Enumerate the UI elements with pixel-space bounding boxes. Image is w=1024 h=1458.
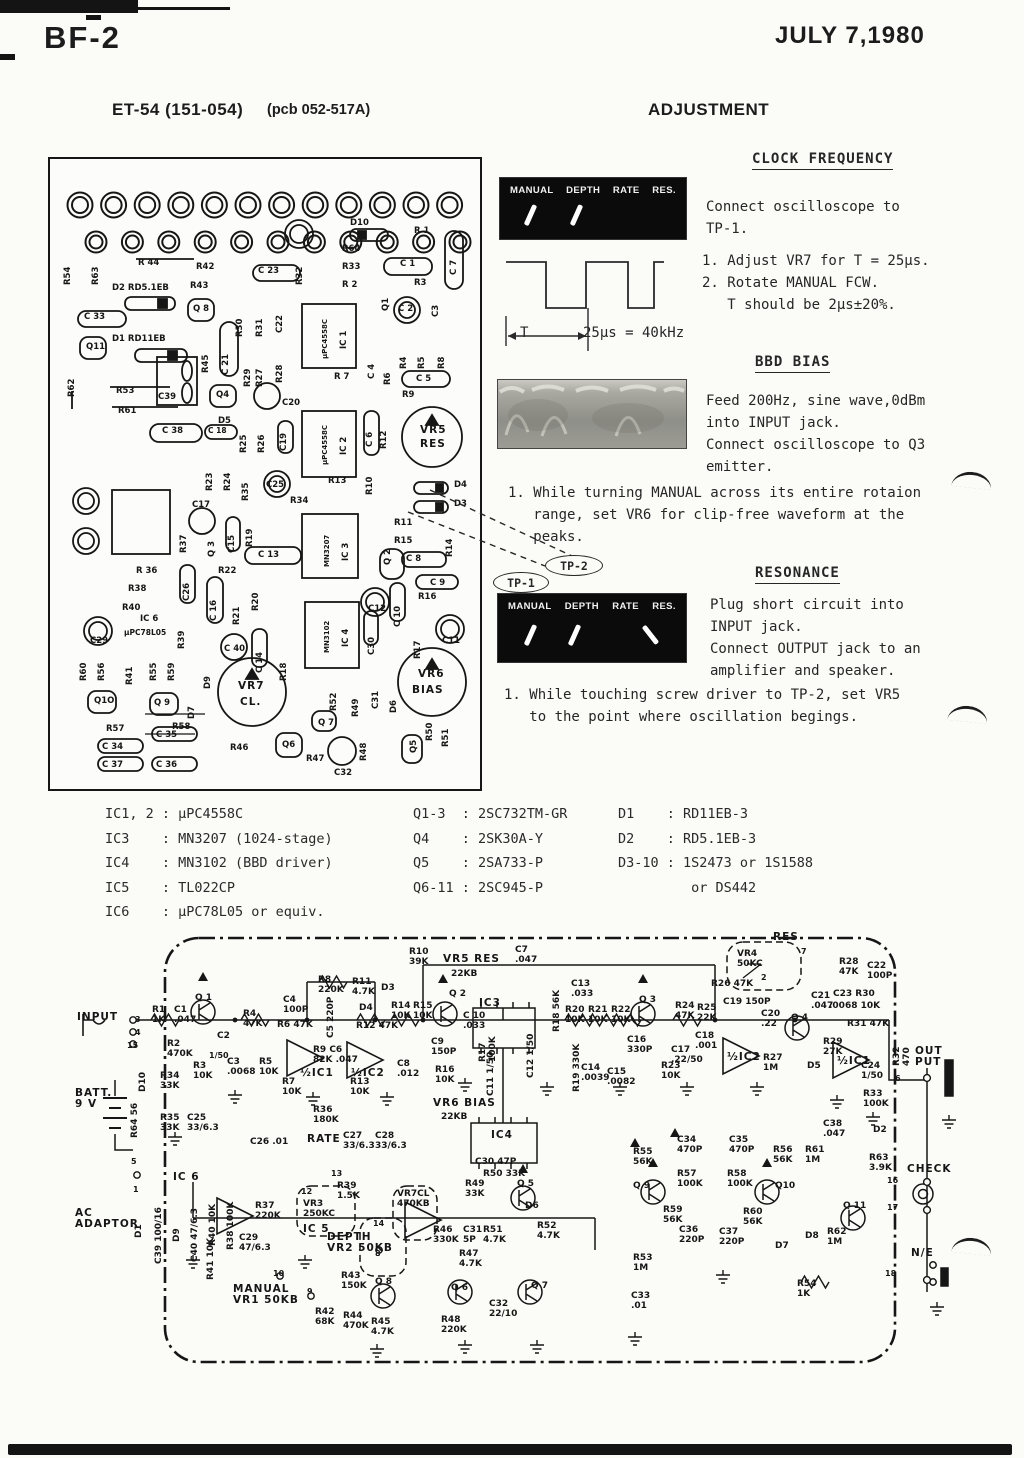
sch-label-c20: C20 .22 — [761, 1010, 780, 1029]
depth-knob-pointer — [570, 204, 583, 226]
text-line: amplifier and speaker. — [710, 660, 921, 682]
sch-label-c28: C28 33/6.3 — [375, 1132, 407, 1151]
sch-label-c9: C9 150P — [431, 1038, 456, 1057]
knob-label-manual: MANUAL — [510, 185, 554, 196]
sch-label-r21: R21 10K — [588, 1006, 608, 1025]
sch-label-r34: R34 33K — [160, 1072, 180, 1091]
sch-label-c7: C7 .047 — [515, 946, 537, 965]
sch-label-c4: C4 100P — [283, 996, 308, 1015]
sch-label-vr6: VR6 BIAS — [433, 1098, 496, 1109]
text-line: 1. Adjust VR7 for T = 25μs. — [702, 250, 930, 272]
sch-label-4: 4 — [135, 1029, 141, 1038]
sch-label-q: Q 11 — [843, 1202, 866, 1212]
text-line: to the point where oscillation begings. — [504, 706, 900, 728]
sch-label-r39: R39 1.5K — [337, 1182, 360, 1201]
sch-label-d10: D10 — [139, 1072, 149, 1092]
text-line: Q6-11 : 2SC945-P — [413, 876, 567, 901]
knob-label-res: RES. — [652, 601, 676, 612]
sch-label-q: Q 3 — [639, 996, 656, 1006]
sch-label-check: CHECK — [907, 1164, 952, 1175]
sch-label-r37: R37 220K — [255, 1202, 281, 1221]
sch-label-r43: R43 150K — [341, 1272, 367, 1291]
text-line: Q5 : 2SA733-P — [413, 851, 567, 876]
sch-label-c11: C11 1/50 — [487, 1052, 497, 1096]
sch-label-c35: C35 470P — [729, 1136, 754, 1155]
sch-label-ic: IC 5 — [303, 1224, 330, 1235]
test-point-tp2: TP-2 — [545, 555, 603, 576]
wave-frequency-label: 25μs = 40kHz — [583, 322, 684, 344]
sch-label-c8: C8 .012 — [397, 1060, 419, 1079]
text-line: or DS442 — [618, 876, 813, 901]
sch-label-r27: R27 1M — [763, 1054, 782, 1073]
sch-label-c23: C23 R30 — [833, 990, 875, 1000]
clock-frequency-steps: 1. Adjust VR7 for T = 25μs.2. Rotate MAN… — [702, 250, 930, 316]
sch-label-r57: R57 100K — [677, 1170, 703, 1189]
sch-label-vr7cl: VR7CL 470KB — [397, 1190, 430, 1209]
sch-label-d2: D2 — [873, 1126, 887, 1136]
sch-label-d8: D8 — [805, 1232, 819, 1242]
sch-label-r49: R49 33K — [465, 1180, 485, 1199]
sch-label-c30: C30 47P — [475, 1158, 516, 1168]
sch-label-2: 2 — [761, 974, 767, 983]
sch-label-r8: R8 220K — [318, 976, 344, 995]
text-line: Connect oscilloscope to — [706, 196, 900, 218]
sch-label-5: 5 — [131, 1158, 137, 1167]
knob-label-rate: RATE — [612, 601, 639, 612]
sch-label-r25: R25 22K — [697, 1004, 717, 1023]
sch-label-r53: R53 1M — [633, 1254, 652, 1273]
sch-label-r59: R59 56K — [663, 1206, 683, 1225]
sch-label-q: Q 5 — [517, 1180, 534, 1190]
text-line: 2. Rotate MANUAL FCW. — [702, 272, 930, 294]
sch-label-c24: C24 1/50 — [861, 1062, 883, 1081]
sch-label-16: 16 — [887, 1177, 898, 1186]
sch-label-res: RES — [773, 932, 799, 943]
sch-label-r42: R42 68K — [315, 1308, 335, 1327]
sch-label-vr5: VR5 RES — [443, 954, 500, 965]
sch-label-q: Q 7 — [531, 1282, 548, 1292]
sch-label-13: 13 — [331, 1170, 342, 1179]
sch-label-r55: R55 56K — [633, 1148, 653, 1167]
sch-label-r1: R1 1K — [152, 1006, 165, 1025]
sch-label-½ic2: ½IC2 — [727, 1052, 761, 1063]
res-knob-pointer — [642, 625, 659, 645]
sch-label-r60: R60 56K — [743, 1208, 763, 1227]
sch-label-r24: R24 47K — [675, 1002, 695, 1021]
sch-label-r44: R44 470K — [343, 1312, 369, 1331]
text-line: Feed 200Hz, sine wave,0dBm — [706, 390, 925, 412]
sch-label-d1: D1 — [135, 1224, 145, 1238]
sch-label-c33: C33 .01 — [631, 1292, 650, 1311]
sch-label-c40: C40 47/6.3 — [191, 1208, 201, 1262]
knob-panel-clock: MANUALDEPTHRATERES. — [500, 178, 686, 239]
sch-label-depth: DEPTH VR2 50KB — [327, 1232, 393, 1255]
sch-label-d9: D9 — [173, 1228, 183, 1242]
sch-label-q: Q 1 — [195, 994, 212, 1004]
sch-label-12: 12 — [301, 1188, 312, 1197]
sch-label-q: Q 8 — [375, 1278, 392, 1288]
sch-label-r31: R31 47K — [847, 1020, 889, 1030]
text-line: IC1, 2 : μPC4558C — [105, 802, 333, 827]
knob-label-res: RES. — [652, 185, 676, 196]
sch-label-c29: C29 47/6.3 — [239, 1234, 271, 1253]
sch-label-r7: R7 10K — [282, 1078, 302, 1097]
sch-label-c26: C26 .01 — [250, 1138, 288, 1148]
sch-label-n/e: N/E — [911, 1248, 934, 1259]
sch-label-manual: MANUAL VR1 50KB — [233, 1284, 299, 1307]
resonance-heading: RESONANCE — [755, 565, 840, 584]
clock-frequency-intro: Connect oscilloscope toTP-1. — [706, 196, 900, 240]
text-line: D1 : RD11EB-3 — [618, 802, 813, 827]
sch-label-c: C 10 .033 — [463, 1012, 485, 1031]
parts-list: IC1, 2 : μPC4558CIC3 : MN3207 (1024-stag… — [105, 802, 965, 930]
text-line: Connect oscilloscope to Q3 — [706, 434, 925, 456]
sch-label-q: Q 2 — [449, 990, 466, 1000]
sch-label-3: 3 — [135, 1016, 141, 1025]
resonance-intro: Plug short circuit intoINPUT jack.Connec… — [710, 594, 921, 682]
sch-label-c14: C14 .0039 — [581, 1064, 609, 1083]
resonance-steps: 1. While touching screw driver to TP-2, … — [504, 684, 900, 728]
sch-label-batt.: BATT. 9 V — [75, 1088, 112, 1111]
sch-label-r41: R41 10K — [207, 1238, 217, 1280]
sch-label-r36: R36 180K — [313, 1106, 339, 1125]
scan-artifact-bottom-bar — [8, 1444, 1012, 1455]
sch-label-c19: C19 150P — [723, 998, 771, 1008]
depth-knob-pointer — [568, 624, 581, 646]
sch-label-c36: C36 220P — [679, 1226, 704, 1245]
text-line: INPUT jack. — [710, 616, 921, 638]
service-manual-page: BF-2 JULY 7,1980 ET-54 (151-054) (pcb 05… — [0, 0, 1024, 1458]
sch-label-9: 9 — [307, 1288, 313, 1297]
sch-label-.0068: .0068 10K — [829, 1002, 880, 1012]
sch-label-c5: C5 220P — [327, 997, 337, 1038]
text-line: 1. While touching screw driver to TP-2, … — [504, 684, 900, 706]
text-line: IC4 : MN3102 (BBD driver) — [105, 851, 333, 876]
sch-label-r61: R61 1M — [805, 1146, 824, 1165]
sch-label-c22: C22 100P — [867, 962, 892, 981]
sch-label-r22: R22 10K — [611, 1006, 631, 1025]
sch-label-r38: R38 100K — [227, 1202, 237, 1250]
sch-label-c1: C1 .047 — [174, 1006, 196, 1025]
sch-label-q: Q 9 — [633, 1182, 650, 1192]
sch-label-d6: D6 — [525, 1202, 539, 1212]
sch-label-c37: C37 220P — [719, 1228, 744, 1247]
schematic-diagram: INPUT3415R1 1KC1 .047Q 1R2 470KR3 10KR34… — [75, 920, 1015, 1405]
bbd-bias-intro: Feed 200Hz, sine wave,0dBminto INPUT jac… — [706, 390, 925, 478]
sch-label-1/50: 1/50 — [209, 1052, 229, 1061]
sch-label-15: 15 — [127, 1042, 138, 1051]
sch-label-r12: R12 47K — [356, 1022, 398, 1032]
sch-label-18: 18 — [885, 1270, 896, 1279]
sch-label-c12: C12 1/50 — [527, 1034, 537, 1078]
sch-label-ic4: IC4 — [491, 1130, 513, 1141]
sch-label-r64: R64 56 — [131, 1103, 141, 1138]
sch-label-q: Q 4 — [791, 1014, 808, 1024]
sch-label-r20: R20 10K — [565, 1006, 585, 1025]
sch-label-r63: R63 3.9K — [869, 1154, 892, 1173]
text-line: TP-1. — [706, 218, 900, 240]
sch-label-r18: R18 56K — [553, 990, 563, 1032]
sch-label-22kb: 22KB — [451, 970, 477, 980]
knob-label-depth: DEPTH — [565, 601, 599, 612]
sch-label-ic: IC 6 — [173, 1172, 200, 1183]
sch-label-d5: D5 — [807, 1062, 821, 1072]
sch-label-c32: C32 22/10 — [489, 1300, 517, 1319]
sch-label-c16: C16 330P — [627, 1036, 652, 1055]
sch-label-r13: R13 10K — [350, 1078, 370, 1097]
sch-label-d4: D4 — [359, 1004, 373, 1014]
knob-label-rate: RATE — [613, 185, 640, 196]
text-line: range, set VR6 for clip-free waveform at… — [508, 504, 921, 526]
parts-list-ic-column: IC1, 2 : μPC4558CIC3 : MN3207 (1024-stag… — [105, 802, 333, 925]
sch-label-r26: R26 47K — [711, 980, 753, 990]
sch-label-ac: AC ADAPTOR — [75, 1208, 139, 1231]
sch-label-r54: R54 1K — [797, 1280, 816, 1299]
sch-label-q: Q 6 — [451, 1284, 468, 1294]
text-line: into INPUT jack. — [706, 412, 925, 434]
sch-label-c38: C38 .047 — [823, 1120, 845, 1139]
sch-label-10: 10 — [273, 1270, 284, 1279]
sch-label-17: 17 — [887, 1204, 898, 1213]
sch-label-c13: C13 .033 — [571, 980, 593, 999]
knob-labels: MANUALDEPTHRATERES. — [500, 178, 686, 196]
sch-label-ic3: IC3 — [479, 998, 501, 1009]
clock-frequency-heading: CLOCK FREQUENCY — [752, 151, 893, 170]
sch-label-input: INPUT — [77, 1012, 118, 1023]
manual-knob-pointer — [524, 204, 537, 226]
sch-label-r14: R14 10K — [391, 1002, 411, 1021]
sch-label-r11: R11 4.7K — [352, 978, 375, 997]
sch-label-r5: R5 10K — [259, 1058, 279, 1077]
sch-label-q10: Q10 — [775, 1182, 795, 1192]
sch-label-out: OUT PUT — [915, 1046, 943, 1069]
sch-label-r62: R62 1M — [827, 1228, 846, 1247]
text-line: Connect OUTPUT jack to an — [710, 638, 921, 660]
parts-list-diode-column: D1 : RD11EB-3D2 : RD5.1EB-3D3-10 : 1S247… — [618, 802, 813, 900]
sch-label-c31: C31 5P — [463, 1226, 482, 1245]
text-line: D3-10 : 1S2473 or 1S1588 — [618, 851, 813, 876]
sch-label-r33: R33 100K — [863, 1090, 889, 1109]
sch-label-vr4: VR4 50KC — [737, 950, 763, 969]
sch-label-1: 1 — [133, 1186, 139, 1195]
test-point-tp1: TP-1 — [493, 572, 549, 593]
text-line: IC5 : TL022CP — [105, 876, 333, 901]
sch-label-22kb: 22KB — [441, 1113, 467, 1123]
sch-label-c18: C18 .001 — [695, 1032, 717, 1051]
sch-label-r16: R16 10K — [435, 1066, 455, 1085]
text-line: Plug short circuit into — [710, 594, 921, 616]
sch-label-6: 6 — [895, 1075, 901, 1084]
wave-period-label: T — [520, 322, 528, 344]
waveform-photo — [498, 380, 686, 448]
sch-label-c25: C25 33/6.3 — [187, 1114, 219, 1133]
sch-label-r32: R32 470 — [893, 1047, 912, 1066]
sch-label-rate: RATE — [307, 1134, 341, 1145]
bbd-bias-heading: BBD BIAS — [755, 354, 830, 373]
knob-labels: MANUALDEPTHRATERES. — [498, 594, 686, 612]
knob-panel-resonance: MANUALDEPTHRATERES. — [498, 594, 686, 662]
sch-label-14: 14 — [373, 1220, 384, 1229]
bbd-bias-steps: 1. While turning MANUAL across its entir… — [508, 482, 921, 548]
parts-list-transistor-column: Q1-3 : 2SC732TM-GRQ4 : 2SK30A-YQ5 : 2SA7… — [413, 802, 567, 900]
knob-label-manual: MANUAL — [508, 601, 552, 612]
text-line: 1. While turning MANUAL across its entir… — [508, 482, 921, 504]
sch-label-c39: C39 100/16 — [155, 1207, 165, 1264]
text-line: emitter. — [706, 456, 925, 478]
sch-label-r47: R47 4.7K — [459, 1250, 482, 1269]
sch-label-vr3: VR3 250KC — [303, 1200, 335, 1219]
sch-label-d7: D7 — [775, 1242, 789, 1252]
sch-label-c3: C3 .0068 — [227, 1058, 255, 1077]
manual-knob-pointer — [524, 624, 537, 646]
sch-label-r58: R58 100K — [727, 1170, 753, 1189]
sch-label-7: 7 — [801, 948, 807, 957]
sch-label-r2: R2 470K — [167, 1040, 193, 1059]
text-line: IC3 : MN3207 (1024-stage) — [105, 827, 333, 852]
sch-label-r51: R51 4.7K — [483, 1226, 506, 1245]
knob-label-depth: DEPTH — [566, 185, 600, 196]
sch-label-r9: R9 C6 82K .047 — [313, 1046, 358, 1065]
sch-label-8: 8 — [375, 1250, 381, 1259]
sch-label-r10: R10 39K — [409, 948, 429, 967]
sch-label-½ic1: ½IC1 — [300, 1068, 334, 1079]
text-line: T should be 2μs±20%. — [702, 294, 930, 316]
text-line: peaks. — [508, 526, 921, 548]
sch-label-r46: R46 330K — [433, 1226, 459, 1245]
sch-label-r28: R28 47K — [839, 958, 859, 977]
text-line: D2 : RD5.1EB-3 — [618, 827, 813, 852]
sch-label-d3: D3 — [381, 984, 395, 994]
sch-label-r6: R6 47K — [277, 1021, 313, 1031]
sch-label-c2: C2 — [217, 1032, 230, 1042]
text-line: Q1-3 : 2SC732TM-GR — [413, 802, 567, 827]
sch-label-r3: R3 10K — [193, 1062, 213, 1081]
sch-label-r48: R48 220K — [441, 1316, 467, 1335]
sch-label-r56: R56 56K — [773, 1146, 793, 1165]
sch-label-c27: C27 33/6.3 — [343, 1132, 375, 1151]
sch-label-c15: C15 .0082 — [607, 1068, 635, 1087]
text-line: Q4 : 2SK30A-Y — [413, 827, 567, 852]
sch-label-c34: C34 470P — [677, 1136, 702, 1155]
sch-label-r35: R35 33K — [160, 1114, 180, 1133]
schematic-label-layer: INPUT3415R1 1KC1 .047Q 1R2 470KR3 10KR34… — [75, 920, 1015, 1405]
sch-label-r45: R45 4.7K — [371, 1318, 394, 1337]
sch-label-r52: R52 4.7K — [537, 1222, 560, 1241]
sch-label-r15: R15 10K — [413, 1002, 433, 1021]
sch-label-r4: R4 47K — [243, 1010, 263, 1029]
